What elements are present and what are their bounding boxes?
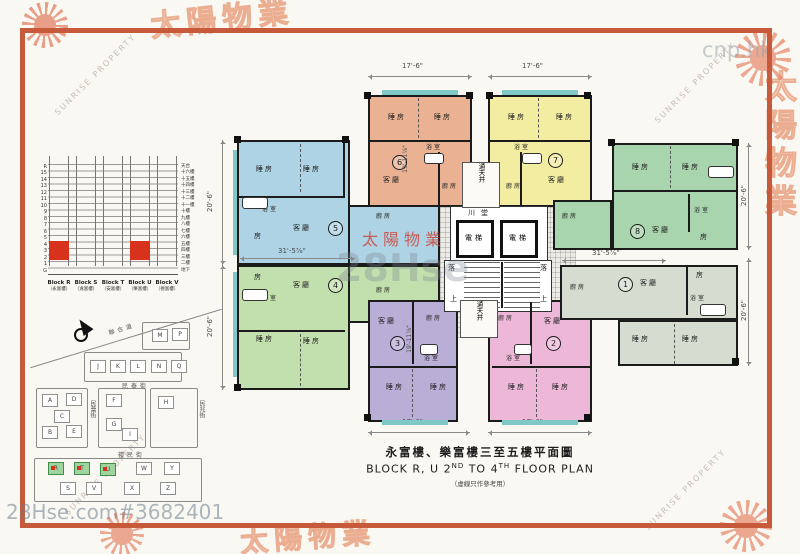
- room-label: 客廳: [293, 282, 311, 289]
- room-label: 睡房: [256, 166, 274, 173]
- dimension-line: [222, 140, 223, 265]
- reference-dashed-line: [300, 334, 301, 386]
- room-label: 廚房: [562, 214, 578, 220]
- map-building: X: [124, 482, 140, 495]
- balcony-window: [502, 420, 578, 425]
- map-building: N: [151, 360, 167, 373]
- map-building: C: [54, 410, 70, 423]
- room-label: 客廳: [544, 318, 562, 325]
- street-label: 民兆街: [197, 400, 206, 418]
- wall-pier: [732, 139, 739, 146]
- dimension-line: [368, 432, 470, 433]
- room-label: 睡房: [556, 114, 574, 121]
- bathtub-fixture: [708, 166, 734, 178]
- dimension-line: [488, 432, 592, 433]
- room-label: 廚房: [376, 214, 392, 220]
- 28hse-listing-watermark: 28Hse.com#3682401: [6, 500, 224, 524]
- stair-divider: [501, 262, 503, 308]
- plan-title-note: （虛線只作參考用）: [330, 478, 630, 488]
- toilet-fixture: [522, 153, 542, 164]
- room-label: 浴室: [694, 208, 710, 214]
- map-building: Q: [171, 360, 187, 373]
- room-label: 客廳: [548, 177, 566, 184]
- block-elevation-key: R151413121110987654321G 天台十六樓十五樓十四樓十三樓十二…: [36, 156, 208, 304]
- wall: [370, 140, 470, 142]
- light-well: 通天井: [462, 162, 500, 208]
- room-label: 睡房: [508, 114, 526, 121]
- map-building: Z: [160, 482, 176, 495]
- street-label: 民泰街: [122, 381, 149, 390]
- map-building: A: [42, 394, 58, 407]
- room-label: 客廳: [378, 318, 396, 325]
- reference-dashed-line: [538, 98, 539, 138]
- street-label: 聯合道: [107, 320, 135, 337]
- room-label: 廚房: [506, 184, 522, 190]
- room-label: 浴室: [424, 356, 440, 362]
- room-label: 睡房: [388, 114, 406, 121]
- wall-pier: [732, 358, 739, 365]
- title-block: 永富樓、樂富樓三至五樓平面圖 BLOCK R, U 2ND TO 4TH FLO…: [330, 444, 630, 488]
- map-building: B: [42, 426, 58, 439]
- room-label: 廚房: [426, 316, 442, 322]
- bathtub-fixture: [242, 289, 268, 301]
- unit-1-area: [618, 320, 738, 366]
- map-building-highlight: U: [100, 463, 116, 476]
- room-label: 廚房: [570, 285, 586, 291]
- stair-up-label: 上: [450, 296, 459, 303]
- balcony-window: [502, 90, 578, 95]
- highlighted-floors-block-u: [130, 241, 150, 260]
- room-label: 睡房: [434, 114, 452, 121]
- room-label: 浴室: [506, 356, 522, 362]
- room-label: 浴室: [514, 145, 530, 151]
- wall: [688, 194, 690, 232]
- wall: [370, 366, 456, 368]
- map-building: S: [60, 482, 76, 495]
- map-building: F: [106, 394, 122, 407]
- wall-pier: [608, 139, 615, 146]
- dimension-label: 20'-6": [207, 316, 214, 337]
- dimension-line: [562, 260, 666, 261]
- dimension-label: 31'-5⅞": [592, 250, 620, 257]
- unit-7-area: [488, 95, 592, 207]
- wall-pier: [234, 136, 241, 143]
- unit-number: 2: [546, 336, 561, 351]
- stair-up-label: 上: [540, 296, 549, 303]
- room-label: 睡房: [682, 336, 700, 343]
- plan-title-cn: 永富樓、樂富樓三至五樓平面圖: [330, 444, 630, 460]
- room-label: 睡房: [256, 336, 274, 343]
- unit-number: 3: [390, 336, 405, 351]
- dimension-line: [222, 265, 223, 390]
- room-label: 睡房: [508, 384, 526, 391]
- floor-numbers: R151413121110987654321G: [36, 164, 47, 274]
- dimension-line: [748, 143, 749, 250]
- floor-plan-sheet: SUNRISE PROPERTY SUNRISE PROPERTY SUNRIS…: [0, 0, 800, 554]
- toilet-fixture: [424, 153, 444, 164]
- balcony-window: [233, 272, 237, 377]
- reference-dashed-line: [674, 324, 675, 364]
- unit-number: 1: [618, 277, 633, 292]
- map-building: K: [110, 360, 126, 373]
- unit-8-area: [553, 200, 612, 250]
- room-label: 房: [254, 274, 263, 281]
- map-building-highlight: T: [74, 462, 90, 475]
- balcony-window: [233, 150, 237, 255]
- map-building: Y: [164, 462, 180, 475]
- dimension-label: 19'-11⅞": [403, 145, 409, 173]
- room-label: 睡房: [430, 384, 448, 391]
- wall-pier: [466, 92, 473, 99]
- room-label: 浴室: [426, 145, 442, 151]
- unit-6-area: [368, 95, 472, 207]
- map-building: L: [130, 360, 146, 373]
- room-label: 客廳: [293, 225, 311, 232]
- dimension-line: [488, 76, 592, 77]
- map-building: W: [136, 462, 152, 475]
- reference-dashed-line: [418, 98, 419, 138]
- lift-2: 電梯: [500, 220, 538, 258]
- map-building: M: [152, 329, 168, 342]
- room-label: 廚房: [442, 184, 458, 190]
- map-building: J: [90, 360, 106, 373]
- plan-title-en: BLOCK R, U 2ND TO 4TH FLOOR PLAN: [330, 462, 630, 476]
- room-label: 睡房: [632, 336, 650, 343]
- wall-pier: [584, 92, 591, 99]
- map-building: G: [106, 418, 122, 431]
- room-label: 房: [696, 272, 705, 279]
- wall-pier: [486, 92, 493, 99]
- reference-dashed-line: [412, 369, 413, 417]
- highlighted-floors-block-r: [49, 241, 69, 260]
- room-label: 客廳: [640, 280, 658, 287]
- street-label: 禮民街: [118, 450, 145, 459]
- room-label: 睡房: [303, 166, 321, 173]
- room-label: 睡房: [682, 164, 700, 171]
- lift-label: 電梯: [465, 234, 485, 242]
- room-label: 客廳: [652, 227, 670, 234]
- room-label: 房: [254, 233, 263, 240]
- room-label: 客廳: [383, 177, 401, 184]
- room-label: 睡房: [386, 384, 404, 391]
- wall-pier: [364, 414, 371, 421]
- lift-label: 電梯: [509, 234, 529, 242]
- wall: [343, 142, 345, 198]
- dimension-label: 20'-6": [741, 300, 748, 321]
- unit-number: 5: [328, 221, 343, 236]
- wall-pier: [584, 414, 591, 421]
- dimension-label: 17'-6": [402, 63, 423, 70]
- bathtub-fixture: [700, 304, 726, 316]
- map-building: I: [122, 428, 138, 441]
- site-location-map: 聯合道 民泰街 民蕾街 民兆街 禮民街 M P J K L N Q A D C …: [30, 298, 206, 512]
- dimension-label: 17'-6": [522, 63, 543, 70]
- wall: [492, 366, 590, 368]
- toilet-fixture: [514, 344, 532, 355]
- light-well: 通天井: [460, 300, 498, 338]
- bathtub-fixture: [242, 197, 268, 209]
- wall: [239, 330, 345, 332]
- reference-dashed-line: [300, 144, 301, 192]
- lobby-label: 川堂: [468, 210, 494, 217]
- wall-pier: [342, 136, 349, 143]
- reference-dashed-line: [536, 369, 537, 417]
- dimension-label: 20'-6": [207, 191, 214, 212]
- wall: [686, 267, 688, 315]
- reference-dashed-line: [670, 146, 671, 188]
- stair-treads: [504, 262, 540, 308]
- floor-names-cn: 天台十六樓十五樓十四樓十三樓十二樓十一樓十樓九樓八樓七樓六樓五樓四樓三樓二樓地下: [181, 164, 207, 274]
- light-well-label: 通天井: [463, 163, 499, 183]
- room-label: 浴室: [690, 296, 706, 302]
- dimension-label: 20'-6": [741, 185, 748, 206]
- unit-number: 8: [630, 224, 645, 239]
- wall-pier: [364, 92, 371, 99]
- stair-down-label: 落: [540, 265, 549, 272]
- room-label: 睡房: [632, 164, 650, 171]
- map-building: D: [66, 393, 82, 406]
- map-building: V: [86, 482, 102, 495]
- map-building-highlight: R: [48, 462, 64, 475]
- balcony-window: [382, 90, 458, 95]
- wall: [490, 140, 590, 142]
- 28hse-watermark: 28Hse: [336, 246, 469, 290]
- room-label: 廚房: [498, 316, 514, 322]
- block-label: Block V（德富樓）: [150, 280, 184, 292]
- light-well-label: 通天井: [461, 301, 497, 321]
- room-label: 睡房: [552, 384, 570, 391]
- dimension-label: 31'-5⅞": [278, 248, 306, 255]
- wall: [614, 190, 736, 192]
- balcony-window: [382, 420, 448, 425]
- map-building: E: [66, 425, 82, 438]
- map-building: P: [172, 328, 188, 341]
- wall-pier: [234, 384, 241, 391]
- room-label: 房: [700, 234, 709, 241]
- dimension-line: [748, 258, 749, 366]
- dimension-line: [368, 76, 472, 77]
- street-label: 民蕾街: [88, 400, 97, 418]
- room-label: 睡房: [303, 338, 321, 345]
- north-arrow-ring: [74, 328, 88, 342]
- dimension-label: 19'-11⅞": [407, 325, 413, 353]
- unit-number: 7: [548, 153, 563, 168]
- map-building: H: [158, 396, 174, 409]
- toilet-fixture: [420, 344, 438, 355]
